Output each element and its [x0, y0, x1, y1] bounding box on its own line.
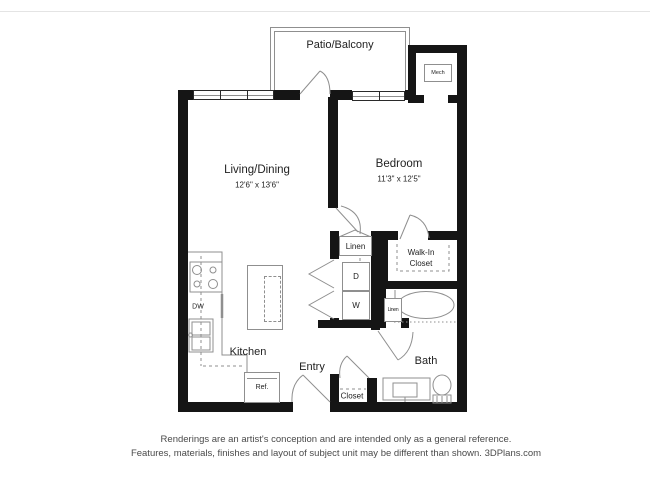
disclaimer-line1: Renderings are an artist's conception an…: [22, 433, 650, 447]
mech-label: Mech: [431, 70, 444, 76]
floorplan-fixtures: [0, 0, 650, 488]
linen-hall-label: Linen: [346, 242, 366, 251]
walkin-closet-label: Walk-In Closet: [398, 247, 444, 269]
washer-box: W: [342, 291, 370, 320]
linen-bath-label: Linen: [388, 307, 399, 313]
kitchen-island: [247, 265, 283, 330]
linen-closet-bath: Linen: [384, 298, 402, 322]
entry-label: Entry: [299, 361, 325, 373]
washer-label: W: [352, 301, 360, 310]
patio-door: [300, 71, 330, 94]
bedroom-label: Bedroom: [376, 158, 423, 170]
patio-label: Patio/Balcony: [306, 39, 373, 51]
kitchen-label: Kitchen: [230, 346, 267, 358]
refrigerator-handle-line: [247, 378, 277, 379]
refrigerator-box: Ref.: [244, 372, 280, 403]
linen-closet-hall: Linen: [339, 236, 372, 256]
washer-dryer-bifold-doors: [309, 260, 334, 319]
entry-closet-door: [340, 356, 369, 378]
toilet-icon: [433, 375, 451, 403]
bathtub-icon: [394, 290, 456, 322]
bedroom-door: [336, 206, 360, 234]
dishwasher-label: DW: [192, 304, 204, 311]
disclaimer: Renderings are an artist's conception an…: [22, 433, 650, 461]
vanity-sink-icon: [383, 378, 430, 402]
stove-icon: [190, 262, 222, 292]
disclaimer-line2: Features, materials, finishes and layout…: [22, 447, 650, 461]
living-dimensions: 12'6" x 13'6": [235, 181, 279, 190]
floorplan-page: Mech Linen D W Linen Ref. Patio/Balcony …: [0, 0, 650, 488]
bedroom-dimensions: 11'3" x 12'5": [377, 175, 420, 184]
entry-door: [292, 375, 330, 402]
bath-door: [378, 331, 413, 360]
entry-closet-label: Closet: [341, 392, 364, 401]
dryer-label: D: [353, 272, 359, 281]
bath-label: Bath: [415, 355, 438, 367]
living-label: Living/Dining: [224, 164, 290, 176]
mech-box: Mech: [424, 64, 452, 82]
island-overhang-dash: [264, 276, 281, 322]
walkin-closet-door: [400, 215, 429, 239]
dryer-box: D: [342, 262, 370, 291]
refrigerator-label: Ref.: [256, 384, 269, 391]
